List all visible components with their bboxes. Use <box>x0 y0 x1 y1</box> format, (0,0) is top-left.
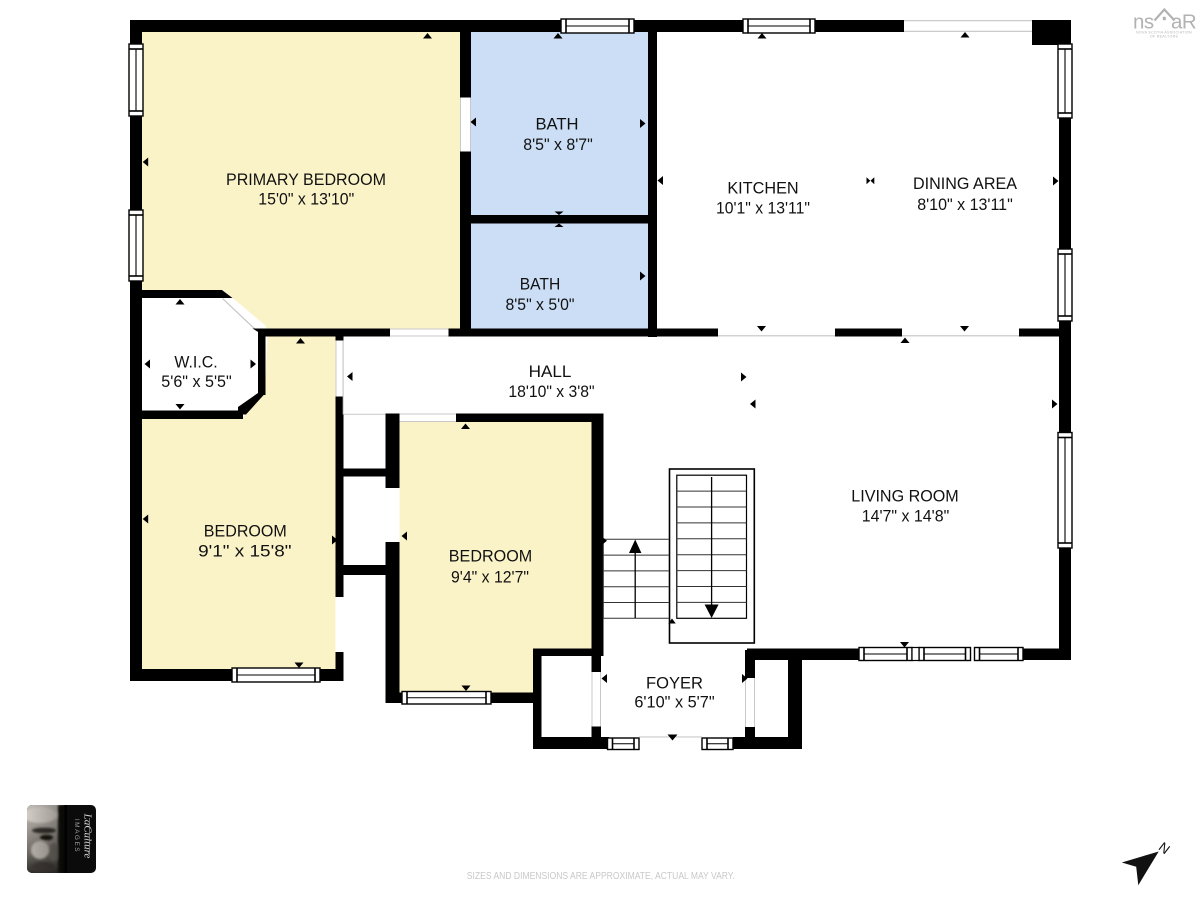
svg-text:8'5" x 5'0": 8'5" x 5'0" <box>506 295 575 314</box>
svg-text:OF REALTORS: OF REALTORS <box>1150 35 1179 39</box>
svg-text:DINING AREA: DINING AREA <box>913 174 1018 193</box>
svg-text:8'5" x 8'7": 8'5" x 8'7" <box>523 135 593 154</box>
svg-text:LaCulture: LaCulture <box>82 813 94 859</box>
svg-text:BATH: BATH <box>520 275 561 294</box>
svg-text:5'6" x 5'5": 5'6" x 5'5" <box>161 372 231 391</box>
svg-text:LIVING ROOM: LIVING ROOM <box>851 487 959 506</box>
svg-text:14'7" x 14'8": 14'7" x 14'8" <box>862 507 950 526</box>
svg-text:9'4" x 12'7": 9'4" x 12'7" <box>451 567 529 586</box>
svg-text:BATH: BATH <box>536 115 579 134</box>
svg-text:15'0" x 13'10": 15'0" x 13'10" <box>258 190 354 209</box>
svg-text:W.I.C.: W.I.C. <box>174 352 217 371</box>
svg-text:HALL: HALL <box>529 362 572 381</box>
svg-text:BEDROOM: BEDROOM <box>204 522 287 541</box>
svg-text:KITCHEN: KITCHEN <box>727 179 798 198</box>
svg-text:IMAGES: IMAGES <box>73 819 80 853</box>
svg-text:SIZES AND DIMENSIONS ARE APPRO: SIZES AND DIMENSIONS ARE APPROXIMATE, AC… <box>467 870 735 882</box>
svg-text:18'10" x 3'8": 18'10" x 3'8" <box>508 382 594 401</box>
svg-text:PRIMARY BEDROOM: PRIMARY BEDROOM <box>226 170 386 189</box>
svg-text:6'10" x 5'7": 6'10" x 5'7" <box>634 693 714 712</box>
svg-text:10'1" x 13'11": 10'1" x 13'11" <box>716 199 810 218</box>
svg-text:BEDROOM: BEDROOM <box>449 546 532 565</box>
svg-text:FOYER: FOYER <box>646 674 703 693</box>
svg-text:8'10" x 13'11": 8'10" x 13'11" <box>917 195 1013 214</box>
svg-text:9'1" x 15'8": 9'1" x 15'8" <box>198 542 291 561</box>
